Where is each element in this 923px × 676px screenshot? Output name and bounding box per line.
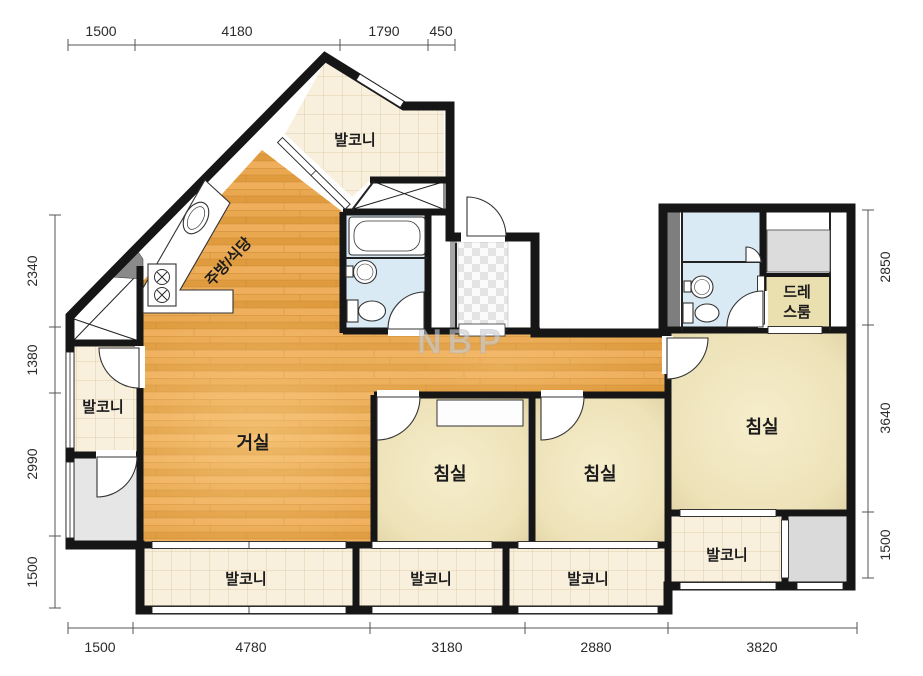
dimension-left: 2340 1380 2990 1500 (24, 215, 61, 608)
right-block-closet (767, 230, 830, 272)
balcony-left-window (66, 352, 74, 538)
entry-front-door (467, 197, 506, 236)
bedroom2-label: 침실 (583, 464, 616, 484)
bedroom-master-label: 침실 (745, 417, 778, 437)
dim-bottom-0: 1500 (84, 639, 115, 655)
dim-bottom-2: 3180 (431, 639, 462, 655)
dim-left-2: 2990 (24, 448, 40, 479)
dim-right-1: 3640 (877, 402, 893, 433)
dim-top-1: 4180 (221, 23, 252, 39)
kitchen-stove (148, 264, 176, 306)
dim-top-0: 1500 (85, 23, 116, 39)
bathroom1-bathtub (349, 217, 425, 255)
balcony-left-label: 발코니 (82, 399, 123, 416)
dim-bottom-1: 4780 (235, 639, 266, 655)
right-block-duct-strip (666, 210, 680, 330)
dim-left-3: 1500 (24, 556, 40, 587)
bathroom1-toilet (347, 300, 386, 322)
dimension-top: 1500 4180 1790 450 (68, 23, 455, 51)
balcony4-label: 발코니 (706, 547, 747, 564)
bedroom1-label: 침실 (433, 464, 466, 484)
dim-top-3: 450 (429, 23, 453, 39)
dim-left-1: 1380 (24, 344, 40, 375)
nbp-watermark: NBP (417, 323, 507, 361)
entry-floor (458, 242, 508, 328)
dim-left-0: 2340 (24, 255, 40, 286)
dressroom-label-line1: 드레 (783, 284, 811, 301)
dim-right-2: 1500 (877, 529, 893, 560)
floor-plan-page: NBP 발코니 주방/식당 거실 발코니 침실 침실 침실 드레 스룸 발코니 … (0, 0, 923, 676)
dimension-right: 2850 3640 1500 (862, 210, 893, 578)
balcony2-label: 발코니 (410, 571, 451, 588)
dressroom-label-line2: 스룸 (783, 304, 811, 321)
floor-plan-svg: NBP 발코니 주방/식당 거실 발코니 침실 침실 침실 드레 스룸 발코니 … (0, 0, 923, 676)
living-room-label: 거실 (236, 433, 269, 453)
bedroom1-closet (437, 400, 523, 426)
ac-unit-room-floor (785, 517, 851, 584)
bathroom2-toilet (683, 303, 719, 323)
dim-bottom-3: 2880 (580, 639, 611, 655)
balcony3-label: 발코니 (567, 571, 608, 588)
dim-bottom-4: 3820 (746, 639, 777, 655)
dim-right-0: 2850 (877, 251, 893, 282)
balcony-top-label: 발코니 (334, 132, 375, 149)
dim-top-2: 1790 (368, 23, 399, 39)
dimension-bottom: 1500 4780 3180 2880 3820 (68, 622, 857, 655)
balcony1-label: 발코니 (225, 571, 266, 588)
